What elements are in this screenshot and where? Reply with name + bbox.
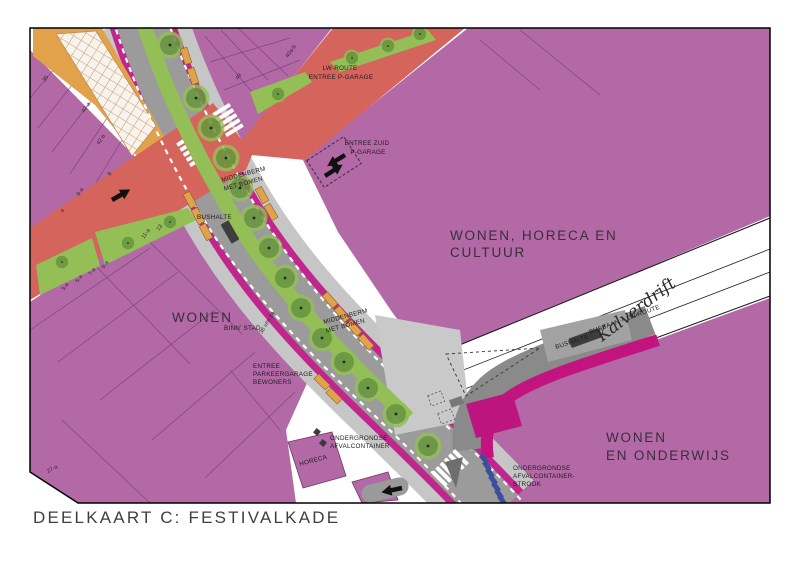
tree-icon: [270, 86, 287, 103]
zone-label-horeca-1: WONEN, HORECA EN: [450, 228, 618, 243]
tree-icon: [162, 214, 179, 231]
zone-label-horeca-2: CULTUUR: [450, 245, 526, 260]
label-entree-zuid-2: P-GARAGE: [350, 149, 385, 156]
tree-icon: [54, 254, 71, 271]
label-entree-parkeer-1: ENTREE: [253, 363, 280, 370]
label-entree-zuid-1: ENTREE ZUID: [345, 140, 390, 147]
label-entree-parkeer-2: PARKEERGARAGE: [253, 371, 313, 378]
label-lw-route-1: LW-ROUTE: [323, 65, 358, 72]
label-lw-route-2: ENTREE P-GARAGE: [309, 74, 373, 81]
page-title: DEELKAART C: FESTIVALKADE: [33, 508, 340, 528]
plan-map: WONEN WONEN, HORECA EN CULTUUR WONEN EN …: [0, 0, 800, 565]
label-strook-3: STROOK: [513, 481, 542, 488]
label-afval-2: AFVALCONTAINER: [330, 443, 390, 450]
label-bushalte-left: BUSHALTE: [197, 214, 232, 221]
tree-icon: [120, 235, 137, 252]
label-strook-2: AFVALCONTAINER-: [513, 473, 575, 480]
label-binnenstad: BINN' STAD: [224, 325, 261, 332]
zone-label-onderwijs-2: EN ONDERWIJS: [606, 448, 731, 463]
label-afval-1: ONDERGRONDSE: [330, 435, 388, 442]
tree-icon: [380, 38, 397, 55]
zone-label-onderwijs-1: WONEN: [606, 430, 667, 445]
label-strook-1: ONDERGRONDSE: [513, 465, 571, 472]
label-entree-parkeer-3: BEWONERS: [253, 379, 292, 386]
tree-icon: [344, 50, 361, 67]
zone-label-wonen: WONEN: [172, 310, 233, 325]
